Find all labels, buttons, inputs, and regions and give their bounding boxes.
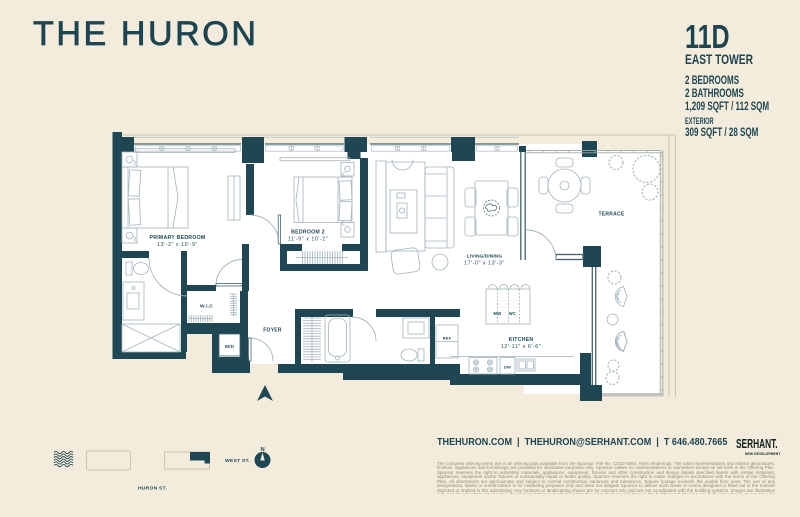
svg-text:12'-11" x 6'-6": 12'-11" x 6'-6" <box>501 344 541 350</box>
svg-text:MW: MW <box>494 311 502 316</box>
svg-text:W.I.C: W.I.C <box>200 304 213 310</box>
svg-text:HURON ST.: HURON ST. <box>138 486 167 492</box>
svg-text:TERRACE: TERRACE <box>599 212 625 218</box>
svg-text:13'-2" x 10'-9": 13'-2" x 10'-9" <box>157 242 198 248</box>
svg-text:FOYER: FOYER <box>263 328 282 334</box>
svg-text:17'-0" x 13'-3": 17'-0" x 13'-3" <box>464 260 505 266</box>
svg-text:LIVING/DINING: LIVING/DINING <box>467 254 503 260</box>
svg-text:11'-9" x 10'-2": 11'-9" x 10'-2" <box>288 236 328 242</box>
svg-text:PRIMARY BEDROOM: PRIMARY BEDROOM <box>150 235 206 241</box>
svg-text:WC: WC <box>509 311 516 316</box>
svg-text:WEST ST.: WEST ST. <box>225 458 250 464</box>
svg-text:W/D: W/D <box>225 344 234 349</box>
svg-text:REF: REF <box>443 336 452 341</box>
svg-text:DW: DW <box>504 365 511 370</box>
svg-text:BEDROOM 2: BEDROOM 2 <box>291 230 325 236</box>
svg-text:KITCHEN: KITCHEN <box>509 337 534 343</box>
